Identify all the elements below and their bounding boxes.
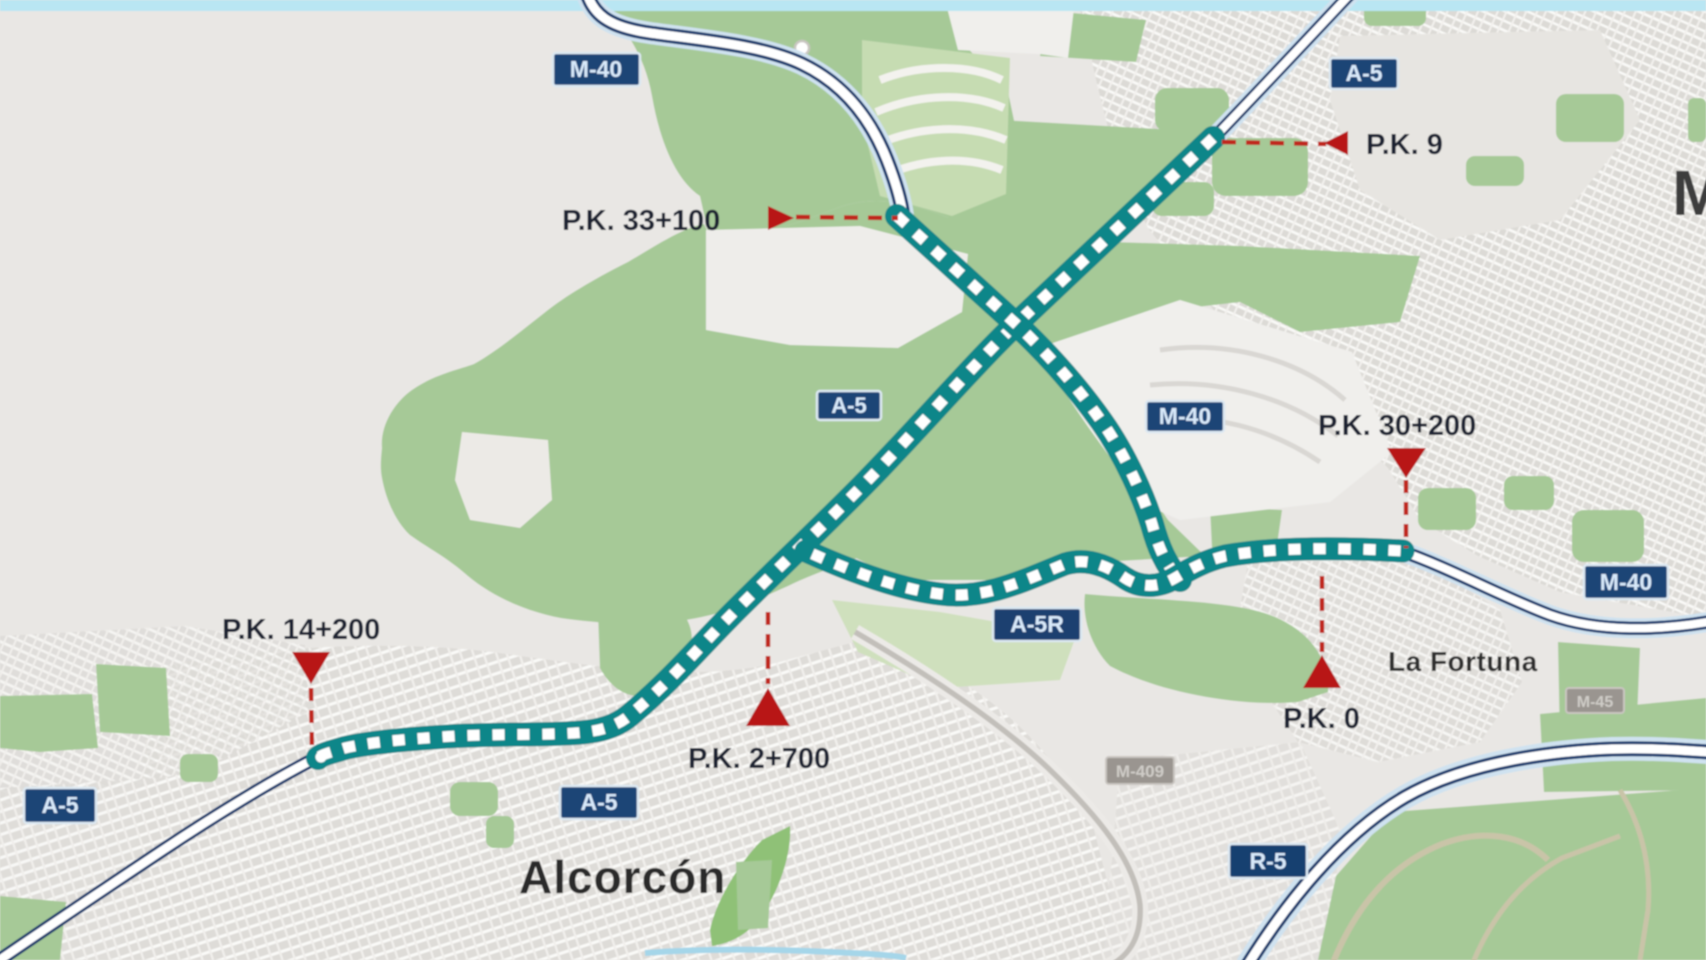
svg-text:M: M: [1672, 157, 1706, 229]
svg-text:A-5: A-5: [41, 792, 78, 818]
svg-text:M-409: M-409: [1116, 762, 1164, 781]
svg-text:M-45: M-45: [1577, 694, 1614, 711]
svg-text:La Fortuna: La Fortuna: [1388, 646, 1538, 677]
svg-text:M-40: M-40: [570, 56, 622, 82]
svg-text:P.K. 2+700: P.K. 2+700: [688, 743, 830, 775]
svg-text:R-5: R-5: [1249, 848, 1286, 874]
svg-text:P.K. 30+200: P.K. 30+200: [1318, 410, 1476, 442]
svg-text:P.K. 14+200: P.K. 14+200: [222, 614, 380, 646]
svg-text:Alcorcón: Alcorcón: [519, 851, 726, 903]
svg-text:P.K. 33+100: P.K. 33+100: [562, 205, 720, 237]
svg-text:M-40: M-40: [1600, 569, 1652, 595]
svg-text:A-5: A-5: [580, 789, 617, 815]
svg-text:P.K. 0: P.K. 0: [1283, 703, 1360, 735]
svg-text:M-40: M-40: [1159, 403, 1211, 429]
svg-text:A-5: A-5: [1345, 60, 1382, 86]
svg-text:P.K. 9: P.K. 9: [1366, 129, 1443, 161]
svg-text:A-5: A-5: [831, 393, 866, 418]
svg-text:A-5R: A-5R: [1010, 611, 1064, 637]
